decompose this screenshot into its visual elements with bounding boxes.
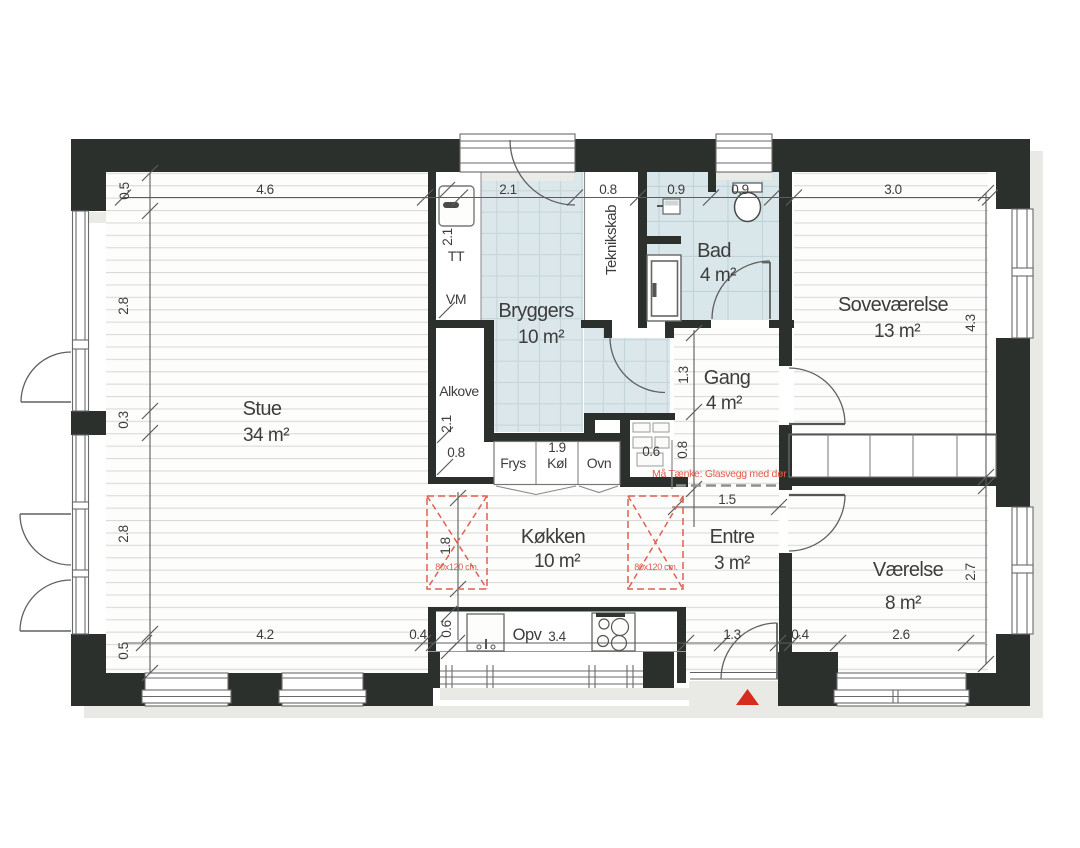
svg-text:0.4: 0.4 <box>791 627 809 642</box>
svg-text:Frys: Frys <box>500 455 526 471</box>
svg-text:0.6: 0.6 <box>439 620 454 638</box>
svg-text:2.1: 2.1 <box>440 228 455 246</box>
svg-text:0.6: 0.6 <box>642 444 660 459</box>
svg-text:1.8: 1.8 <box>438 537 453 555</box>
svg-text:80x120 cm.: 80x120 cm. <box>634 562 678 572</box>
svg-text:80x120 cm.: 80x120 cm. <box>435 562 479 572</box>
svg-text:Værelse: Værelse <box>873 559 944 581</box>
svg-text:1.3: 1.3 <box>676 366 691 384</box>
svg-text:4.6: 4.6 <box>256 182 274 197</box>
svg-text:13 m²: 13 m² <box>874 321 920 342</box>
svg-text:3.0: 3.0 <box>884 182 902 197</box>
svg-text:2.1: 2.1 <box>439 415 454 433</box>
svg-text:3 m²: 3 m² <box>714 553 750 574</box>
svg-text:2.6: 2.6 <box>892 627 910 642</box>
svg-text:Stue: Stue <box>243 398 282 420</box>
svg-text:0.9: 0.9 <box>667 182 685 197</box>
svg-text:3.4: 3.4 <box>548 629 566 644</box>
svg-text:0.8: 0.8 <box>599 182 617 197</box>
svg-text:TT: TT <box>448 248 465 264</box>
svg-text:VM: VM <box>446 291 466 307</box>
svg-text:Køl: Køl <box>547 455 567 471</box>
svg-text:4 m²: 4 m² <box>700 265 736 286</box>
svg-text:Bad: Bad <box>697 240 731 262</box>
svg-text:Bryggers: Bryggers <box>498 300 574 322</box>
svg-text:2.8: 2.8 <box>116 525 131 543</box>
svg-text:2.1: 2.1 <box>499 182 517 197</box>
svg-text:2.8: 2.8 <box>116 297 131 315</box>
svg-text:2.7: 2.7 <box>963 563 978 581</box>
svg-text:34 m²: 34 m² <box>243 425 289 446</box>
svg-text:0.9: 0.9 <box>731 182 749 197</box>
svg-text:Alkove: Alkove <box>439 383 479 399</box>
svg-text:Køkken: Køkken <box>521 526 585 548</box>
svg-text:4.2: 4.2 <box>256 627 274 642</box>
svg-text:1.5: 1.5 <box>718 492 736 507</box>
svg-text:0.5: 0.5 <box>116 642 131 660</box>
svg-text:8 m²: 8 m² <box>885 593 921 614</box>
svg-text:0.3: 0.3 <box>116 411 131 429</box>
svg-text:10 m²: 10 m² <box>518 327 564 348</box>
svg-text:0.8: 0.8 <box>447 445 465 460</box>
svg-text:Soveværelse: Soveværelse <box>838 294 949 316</box>
svg-text:0.5: 0.5 <box>117 182 132 200</box>
svg-text:1.9: 1.9 <box>548 440 566 455</box>
svg-text:Gang: Gang <box>704 367 751 389</box>
svg-text:Opv: Opv <box>513 626 543 644</box>
svg-text:Teknikskab: Teknikskab <box>603 205 620 275</box>
svg-text:0.4: 0.4 <box>409 627 427 642</box>
svg-text:1.3: 1.3 <box>723 627 741 642</box>
svg-text:0.8: 0.8 <box>675 441 690 459</box>
svg-text:Ovn: Ovn <box>587 455 611 471</box>
svg-text:4 m²: 4 m² <box>706 393 742 414</box>
svg-text:Må Tænke: Glasvegg med dør: Må Tænke: Glasvegg med dør <box>652 468 787 480</box>
svg-text:10 m²: 10 m² <box>534 551 580 572</box>
svg-text:4.3: 4.3 <box>963 314 978 332</box>
svg-text:Entre: Entre <box>710 526 755 548</box>
